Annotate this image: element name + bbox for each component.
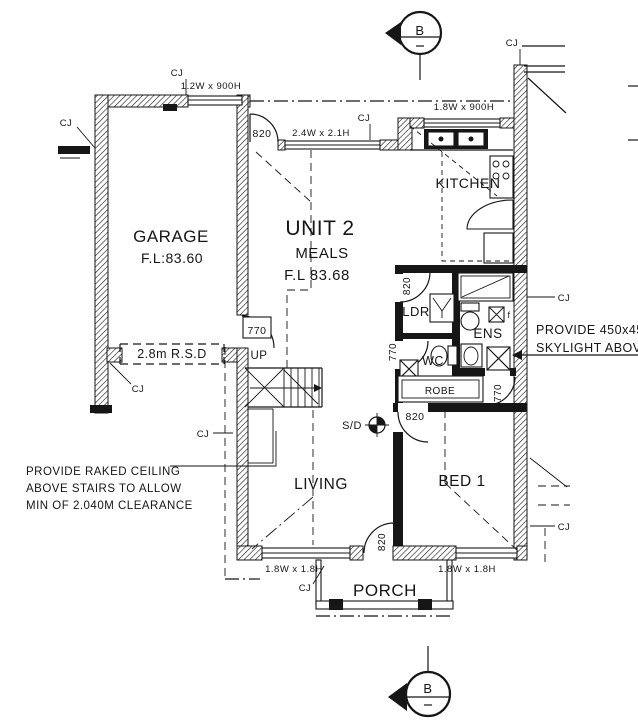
raked-note-line2: ABOVE STAIRS TO ALLOW [26,483,182,495]
floor-plan-drawing: B B UNIT 2 MEALS F.L 83.68 GARAGE F.L:83… [0,0,638,725]
window-size-label: 2.4W x 2.1H [292,128,350,139]
door-width-label: 820 [377,533,388,551]
section-marker-bottom: B [388,646,450,716]
raked-note-line3: MIN OF 2.040M CLEARANCE [26,500,193,512]
window-labels: 1.2W x 900H 2.4W x 2.1H 1.8W x 900H 1.8W… [181,81,496,575]
door-width-label: 770 [388,343,399,361]
skylight-note-line1: PROVIDE 450x450 [536,323,638,337]
porch-pillar [418,599,432,610]
window-size-label: 1.2W x 900H [181,81,241,92]
roller-door-label: 2.8m R.S.D [137,347,207,361]
section-arrow-icon [385,22,401,45]
cj-label: CJ [358,113,371,124]
section-letter: B [415,23,424,38]
garage-label: GARAGE [133,227,209,246]
wc-label: WC [422,354,444,368]
laundry-label: LDR [402,304,430,319]
section-marker-top: B [385,12,441,80]
porch-label: PORCH [353,581,417,600]
meals-label: MEALS [295,245,348,262]
kitchen-sink [424,129,488,149]
window-bed1-front [456,548,517,558]
exhaust-fan-icon [489,307,504,322]
fridge-space [484,233,513,263]
kitchen-fixtures [410,126,513,263]
up-label: UP [251,350,268,362]
window-size-label: 1.8W x 1.8H [265,564,323,575]
cj-label: CJ [60,118,73,129]
garage-floor-level: F.L:83.60 [141,250,203,266]
door-width-label: 770 [493,384,504,402]
reference-lines [120,46,638,579]
skylight-note-line2: SKYLIGHT ABOVE [536,341,638,355]
bed1-label: BED 1 [438,473,485,490]
cj-label: CJ [558,293,571,304]
window-size-label: 1.8W x 1.8H [438,564,496,575]
unit-title: UNIT 2 [285,217,354,240]
ensuite-label: ENS [473,326,502,341]
kitchen-label: KITCHEN [436,175,501,191]
section-letter: B [423,681,432,696]
raked-note-line1: PROVIDE RAKED CEILING [26,466,180,478]
cj-label: CJ [299,583,312,594]
laundry-trough [430,294,454,322]
smoke-detector-label: S/D [342,420,362,432]
section-arrow-icon [388,683,407,711]
ensuite-skylight-icon [487,347,510,370]
cj-label: CJ [197,429,210,440]
cj-label: CJ [132,384,145,395]
window-meals-top [285,141,380,149]
door-width-label: 820 [405,411,424,423]
stairs [245,368,322,463]
door-width-label: 820 [402,277,413,295]
shower [458,273,513,301]
floorplan-canvas: B B UNIT 2 MEALS F.L 83.68 GARAGE F.L:83… [0,0,638,725]
window-size-label: 1.8W x 900H [434,102,494,113]
window-kitchen-top [424,119,500,127]
smoke-detector-icon [365,413,389,437]
fan-label: f [507,310,510,320]
porch-pillar [329,599,343,610]
living-label: LIVING [294,476,348,493]
cj-label: CJ [506,38,519,49]
meals-floor-level: F.L 83.68 [284,267,350,284]
window-living-front [262,548,350,558]
wc-skylight-icon [400,360,418,378]
window-garage-top [188,96,242,105]
ensuite-basin [461,344,482,367]
cj-label: CJ [171,68,184,79]
robe-label: ROBE [425,386,455,397]
stair-direction-arrow [314,384,322,392]
cj-label: CJ [558,522,571,533]
door-width-label: 820 [252,128,271,140]
corner-pantry [467,200,513,229]
door-width-label: 770 [247,325,266,337]
